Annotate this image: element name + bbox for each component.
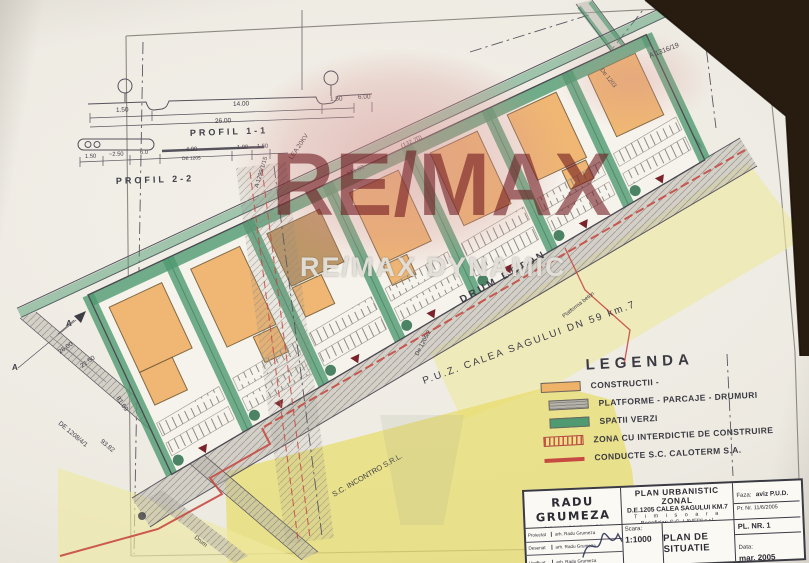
section-marker-a-2: A xyxy=(12,363,18,372)
legend-item-label: PLATFORME - PARCAJE - DRUMURI xyxy=(598,390,757,408)
signature-cell: Proiectat arh. Radu Grumeza Desenat arh.… xyxy=(526,525,625,563)
date-label: Data: xyxy=(738,544,753,551)
faza-value: aviz P.U.D. xyxy=(756,490,789,498)
legend-item-label: SPATII VERZI xyxy=(599,413,658,426)
plan-name: PLAN DE SITUATIE xyxy=(663,520,736,563)
section-arrow xyxy=(74,311,86,323)
scale-value: 1:1000 xyxy=(625,533,660,544)
restriction-swatch xyxy=(543,435,583,447)
profile1-dim-2: 14.00 xyxy=(233,100,250,108)
signature-role: Desenat xyxy=(526,545,552,551)
title-block: RADU GRUMEZA BIROU INDIVIDUAL DE ARHITEC… xyxy=(522,478,806,563)
green-space-swatch xyxy=(549,417,589,429)
profile2-dim-5: 1.00 xyxy=(237,145,248,151)
scale-label: Scara: xyxy=(625,525,660,532)
profile2-road-ref: DE 1205 xyxy=(182,155,201,162)
platform-swatch xyxy=(548,399,588,411)
photographed-plan-sheet: 1.50 14.00 1.50 6.00 26.00 PROFIL 1-1 1.… xyxy=(0,0,809,563)
legend-item-label: CONSTRUCTII - xyxy=(590,377,659,391)
profile1-total: 26.00 xyxy=(215,117,232,125)
profile2-dim-4: 4.00 xyxy=(186,147,197,153)
site-plan-drawing: 1.50 14.00 1.50 6.00 26.00 PROFIL 1-1 1.… xyxy=(0,0,809,563)
label-lea-20kv: LEA 20KV xyxy=(288,132,311,161)
signature-scribble xyxy=(578,526,625,563)
profile2-caption: PROFIL 2-2 xyxy=(116,173,195,186)
construction-swatch xyxy=(540,381,580,393)
project-number: Pr. Nr. 11/6/2005 xyxy=(734,501,800,514)
profile2-dim-3: 6.0 xyxy=(140,150,148,156)
legend-item-label: ZONA CU INTERDICTIE DE CONSTRUIRE xyxy=(593,425,773,444)
plnr-data-cell: PL. NR. 1 Data: mar. 2005 xyxy=(734,517,802,561)
faza-label: Faza: xyxy=(736,492,751,499)
legend-item-label: CONDUCTE S.C. CALOTERM S.A. xyxy=(594,445,742,463)
project-cell: PLAN URBANISTIC ZONAL D.E.1205 CALEA SAG… xyxy=(621,483,734,525)
legend: LEGENDA CONSTRUCTII - PLATFORME - PARCAJ… xyxy=(539,345,809,473)
profile-drawings: 1.50 14.00 1.50 6.00 26.00 PROFIL 1-1 1.… xyxy=(78,10,372,186)
signature-role: Verificat xyxy=(527,559,553,563)
date-value: mar. 2005 xyxy=(739,551,799,561)
profile2-dim-2: ~2.50 xyxy=(109,151,124,158)
intersection-node xyxy=(138,512,146,520)
architect-name: RADU GRUMEZA xyxy=(524,493,621,525)
pipeline-swatch xyxy=(544,457,584,463)
profile2-dim-1: 1.50 xyxy=(85,154,96,160)
faza-cell: Faza: aviz P.U.D. Pr. Nr. 11/6/2005 xyxy=(733,480,800,520)
label-dim-9382: 93.82 xyxy=(99,438,116,454)
profile1-caption: PROFIL 1-1 xyxy=(190,125,269,138)
architect-cell: RADU GRUMEZA BIROU INDIVIDUAL DE ARHITEC… xyxy=(524,488,622,529)
profile1-dim-4: 6.00 xyxy=(358,94,371,101)
label-de1208: DE 1208/4/1 xyxy=(57,420,89,449)
scara-plan-cell: Scara: 1:1000 PLAN DE SITUATIE xyxy=(623,520,737,563)
profile1-dim-1: 1.50 xyxy=(116,107,129,114)
signature-role: Proiectat xyxy=(526,532,552,538)
profile2-dim-6: 1.50 xyxy=(257,144,268,150)
profile1-dim-3: 1.50 xyxy=(330,96,343,103)
